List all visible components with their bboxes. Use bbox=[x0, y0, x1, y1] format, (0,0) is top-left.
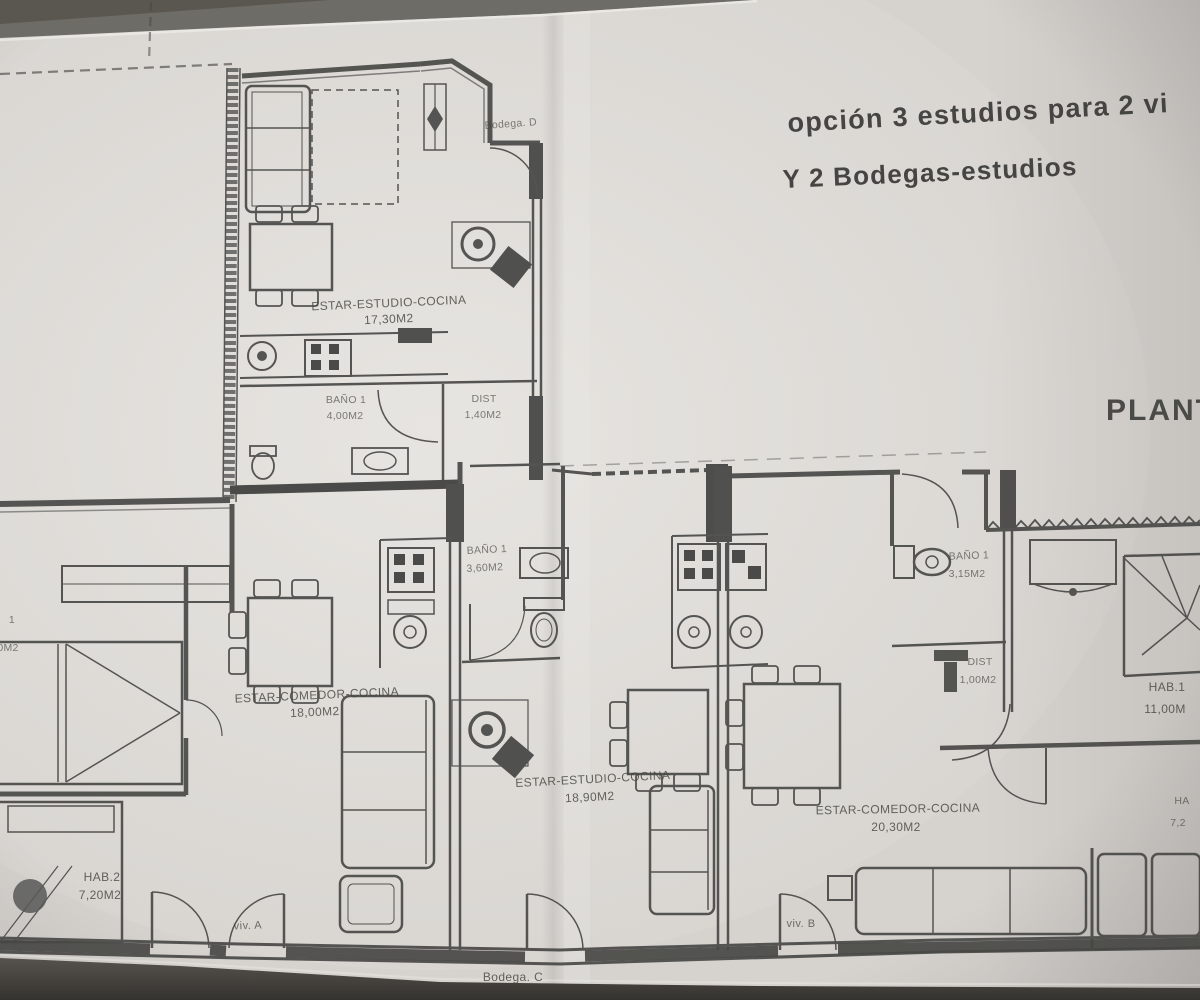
label-viv-b: viv. B bbox=[786, 918, 815, 930]
label-hab2-a-name: HAB.2 bbox=[84, 870, 121, 884]
floor-plan-canvas: opción 3 estudios para 2 vi Y 2 Bodegas-… bbox=[0, 0, 1200, 1000]
label-hab2-b-area-partial: 7,2 bbox=[1170, 817, 1186, 829]
label-bano-b-name: BAÑO 1 bbox=[948, 548, 989, 562]
label-bano-d-name: BAÑO 1 bbox=[326, 393, 366, 406]
label-bano-d-area: 4,00M2 bbox=[327, 410, 364, 422]
label-estar-a-area: 18,00M2 bbox=[290, 704, 340, 720]
label-dist-b-name: DIST bbox=[967, 656, 992, 668]
label-estudio-c-area: 18,90M2 bbox=[565, 789, 615, 806]
label-hab1-a-area-partial: 0M2 bbox=[0, 642, 19, 654]
floor-plan-photo: opción 3 estudios para 2 vi Y 2 Bodegas-… bbox=[0, 0, 1200, 1000]
label-hab2-b-partial: HA bbox=[1174, 795, 1189, 807]
label-bodega-c: Bodega. C bbox=[483, 970, 543, 984]
label-bano-c-name: BAÑO 1 bbox=[466, 542, 507, 557]
label-dist-d-area: 1,40M2 bbox=[465, 409, 502, 421]
label-dist-d-name: DIST bbox=[471, 393, 496, 405]
label-hab1-b-name: HAB.1 bbox=[1149, 680, 1186, 694]
label-viv-a: viv. A bbox=[233, 920, 262, 933]
label-estudio-d-area: 17,30M2 bbox=[364, 311, 414, 327]
label-hab1-b-area: 11,00M bbox=[1144, 702, 1186, 716]
label-bano-b-area: 3,15M2 bbox=[949, 568, 986, 580]
label-estar-b-name: ESTAR-COMEDOR-COCINA bbox=[816, 801, 981, 818]
label-bano-c-area: 3,60M2 bbox=[466, 561, 503, 575]
label-hab2-a-area: 7,20M2 bbox=[79, 888, 121, 902]
label-hab1-a-partial: 1 bbox=[9, 614, 15, 626]
plan-sheet-title: PLANT bbox=[1106, 394, 1200, 427]
label-estar-b-area: 20,30M2 bbox=[871, 820, 921, 834]
label-dist-b-area: 1,00M2 bbox=[960, 674, 997, 686]
